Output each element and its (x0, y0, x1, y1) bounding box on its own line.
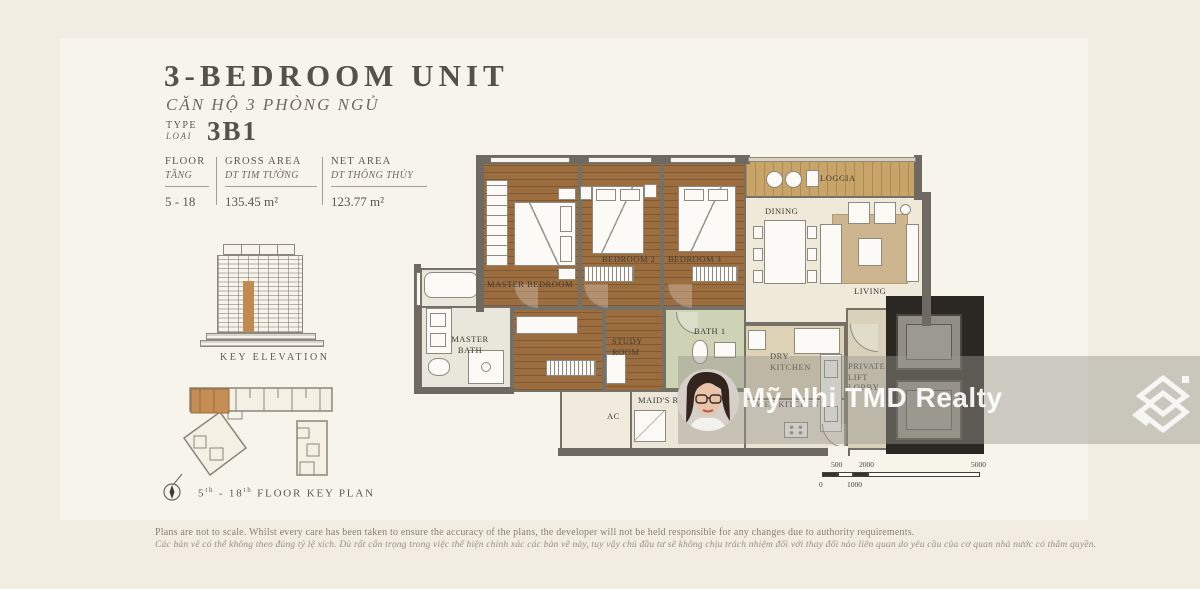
armchair (848, 202, 870, 224)
type-label: TYPE LOẠI (166, 120, 197, 142)
key-elevation-caption: KEY ELEVATION (220, 352, 329, 363)
sink (430, 333, 446, 347)
keyplan-caption-sup: th (205, 486, 214, 494)
watermark-text: Mỹ Nhi TMD Realty (742, 382, 1003, 414)
keyplan-caption-part: FLOOR KEY PLAN (253, 488, 375, 500)
scale-label-5000: 5000 (971, 460, 986, 469)
loggia-cabinet (806, 170, 819, 187)
shower-drain (481, 362, 491, 372)
scale-label-1000: 1000 (847, 480, 862, 489)
loggia-railing (748, 157, 916, 162)
sink (430, 313, 446, 327)
elevation-podium-lower (200, 340, 324, 347)
divider (322, 157, 323, 205)
spec-gross-value: 135.45 m² (225, 194, 317, 210)
spec-col-floor: FLOOR TẦNG 5 - 18 (165, 155, 209, 210)
wall (558, 448, 850, 456)
label-bath-1: BATH 1 (694, 326, 726, 337)
scale-bar-segments (822, 472, 980, 477)
spec-col-gross-area: GROSS AREA DT TIM TƯỜNG 135.45 m² (225, 155, 317, 210)
spec-floor-en: FLOOR (165, 155, 209, 169)
label-ac: AC (607, 411, 620, 422)
label-master-bath: MASTER BATH (448, 334, 492, 355)
chair (807, 248, 817, 261)
label-loggia: LOGGIA (820, 173, 856, 184)
toilet (428, 358, 450, 376)
spec-floor-vi: TẦNG (165, 169, 209, 182)
pillow (620, 189, 640, 201)
keyplan-highlight-unit (191, 389, 229, 413)
spec-floor-value: 5 - 18 (165, 194, 209, 210)
page-title: 3-BEDROOM UNIT (164, 58, 509, 94)
sofa (820, 224, 842, 284)
chair (753, 226, 763, 239)
scale-segment (838, 472, 853, 477)
label-bedroom-3: BEDROOM 3 (668, 254, 721, 265)
page-subtitle-vietnamese: CĂN HỘ 3 PHÒNG NGỦ (166, 95, 380, 115)
realty-logo-icon (1128, 366, 1198, 438)
window (588, 157, 652, 163)
bathtub (424, 272, 478, 298)
nightstand (644, 184, 657, 198)
elevation-highlight-strip (243, 281, 254, 332)
elevation-roof-blocks (223, 244, 295, 255)
nightstand (580, 186, 592, 200)
avatar-face (695, 383, 721, 415)
scale-label-0: 0 (819, 480, 823, 489)
label-living: LIVING (854, 286, 886, 297)
label-master-bedroom: MASTER BEDROOM (487, 279, 573, 290)
entry-door-gap (828, 446, 848, 456)
elevation-tower-grid (217, 255, 303, 333)
compass-icon (160, 470, 194, 504)
spec-gross-vi: DT TIM TƯỜNG (225, 169, 317, 182)
divider (165, 186, 209, 187)
type-value: 3B1 (207, 116, 258, 147)
type-label-vi: LOẠI (166, 131, 192, 141)
scale-segment (868, 472, 980, 477)
dresser-counter (516, 316, 578, 334)
wall (922, 192, 931, 326)
divider (216, 157, 217, 205)
divider (331, 186, 427, 187)
label-dining: DINING (765, 206, 798, 217)
fridge (748, 330, 766, 350)
scale-label-500: 500 (831, 460, 842, 469)
chair (807, 226, 817, 239)
spec-net-value: 123.77 m² (331, 194, 427, 210)
label-bedroom-2: BEDROOM 2 (602, 254, 655, 265)
scale-label-2000: 2000 (859, 460, 874, 469)
spec-col-net-area: NET AREA DT THÔNG THỦY 123.77 m² (331, 155, 427, 210)
divider (225, 186, 317, 187)
maid-bed (634, 410, 666, 442)
disclaimer-english: Plans are not to scale. Whilst every car… (155, 527, 1155, 538)
coffee-table (858, 238, 882, 266)
pillow (560, 236, 572, 262)
armchair (874, 202, 896, 224)
key-elevation-diagram: KEY ELEVATION (195, 240, 335, 360)
study-desk (606, 354, 626, 384)
dryer-icon (785, 171, 802, 188)
pillow (708, 189, 728, 201)
type-label-en: TYPE (166, 120, 197, 131)
chair (753, 270, 763, 283)
keyplan-caption-part: - 18 (214, 488, 243, 500)
scale-segment (822, 472, 838, 477)
agent-avatar (677, 369, 739, 431)
scale-bar: 500 2000 5000 0 1000 (815, 460, 995, 492)
window (670, 157, 736, 163)
tv-console (906, 224, 919, 282)
chair (807, 270, 817, 283)
window (416, 272, 421, 306)
corridor-wardrobe (546, 360, 596, 376)
chair (753, 248, 763, 261)
side-table (900, 204, 911, 215)
spec-gross-en: GROSS AREA (225, 155, 317, 169)
master-wardrobe (486, 180, 508, 266)
pillow (684, 189, 704, 201)
key-plan-diagram (170, 378, 400, 478)
key-plan-caption: 5th - 18th FLOOR KEY PLAN (198, 486, 375, 500)
elevation-podium-upper (206, 333, 316, 340)
spec-net-vi: DT THÔNG THỦY (331, 169, 427, 182)
keyplan-left-wing (184, 412, 246, 475)
label-study-room: STUDY ROOM (612, 336, 654, 357)
keyplan-right-wing (297, 421, 327, 475)
spec-net-en: NET AREA (331, 155, 427, 169)
room-ac-ledge (560, 390, 632, 450)
pillow (560, 206, 572, 232)
wardrobe-3 (692, 266, 738, 282)
floorplan-page: 3-BEDROOM UNIT CĂN HỘ 3 PHÒNG NGỦ TYPE L… (0, 0, 1200, 589)
pillow (596, 189, 616, 201)
dining-table (764, 220, 806, 284)
washer-icon (766, 171, 783, 188)
wardrobe-2 (584, 266, 634, 282)
keyplan-caption-sup: th (244, 486, 253, 494)
scale-segment (853, 472, 868, 477)
spec-table: FLOOR TẦNG 5 - 18 GROSS AREA DT TIM TƯỜN… (165, 155, 425, 210)
window (490, 157, 570, 163)
wall (414, 387, 514, 394)
disclaimer-vietnamese: Các bản vẽ có thể không theo đúng tỷ lệ … (155, 540, 1195, 550)
nightstand (558, 188, 576, 200)
wall (476, 155, 484, 312)
